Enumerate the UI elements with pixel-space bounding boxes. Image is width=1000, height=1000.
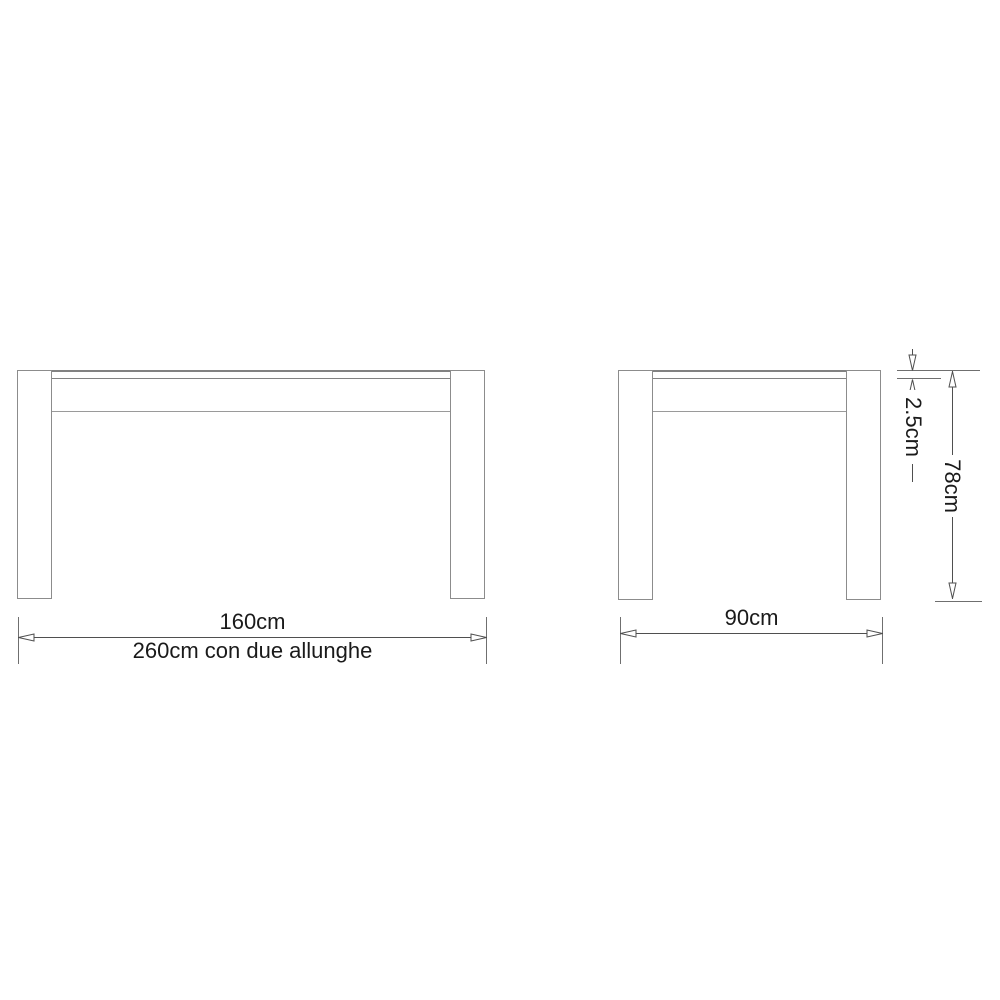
side-dim-arrow-left-icon [620, 629, 637, 638]
front-tabletop-underside-line [52, 378, 450, 379]
front-tabletop-top-line [17, 370, 485, 372]
height-arrow-up-icon [948, 371, 957, 388]
height-label: 78cm [941, 455, 963, 517]
front-width-label: 160cm [18, 611, 487, 633]
side-depth-label: 90cm [620, 607, 883, 629]
side-right-leg [846, 370, 881, 600]
drawing-canvas: 160cm 260cm con due allunghe 90cm [0, 0, 1000, 1000]
height-arrow-down-icon [948, 582, 957, 599]
front-left-leg [17, 370, 52, 599]
height-ext-line-bottom [935, 601, 982, 602]
thickness-ext-line-bottom [897, 378, 941, 379]
side-tabletop-underside-line [653, 378, 846, 379]
top-thickness-label: 2.5cm [902, 390, 924, 464]
front-right-leg [450, 370, 485, 599]
side-apron-line [653, 411, 846, 412]
side-dim-arrow-right-icon [866, 629, 883, 638]
thickness-arrow-down-icon [908, 354, 917, 371]
side-left-leg [618, 370, 653, 600]
front-extended-width-label: 260cm con due allunghe [18, 640, 487, 662]
side-dim-line [620, 633, 883, 634]
front-apron-line [52, 411, 450, 412]
side-tabletop-top-line [618, 370, 881, 372]
